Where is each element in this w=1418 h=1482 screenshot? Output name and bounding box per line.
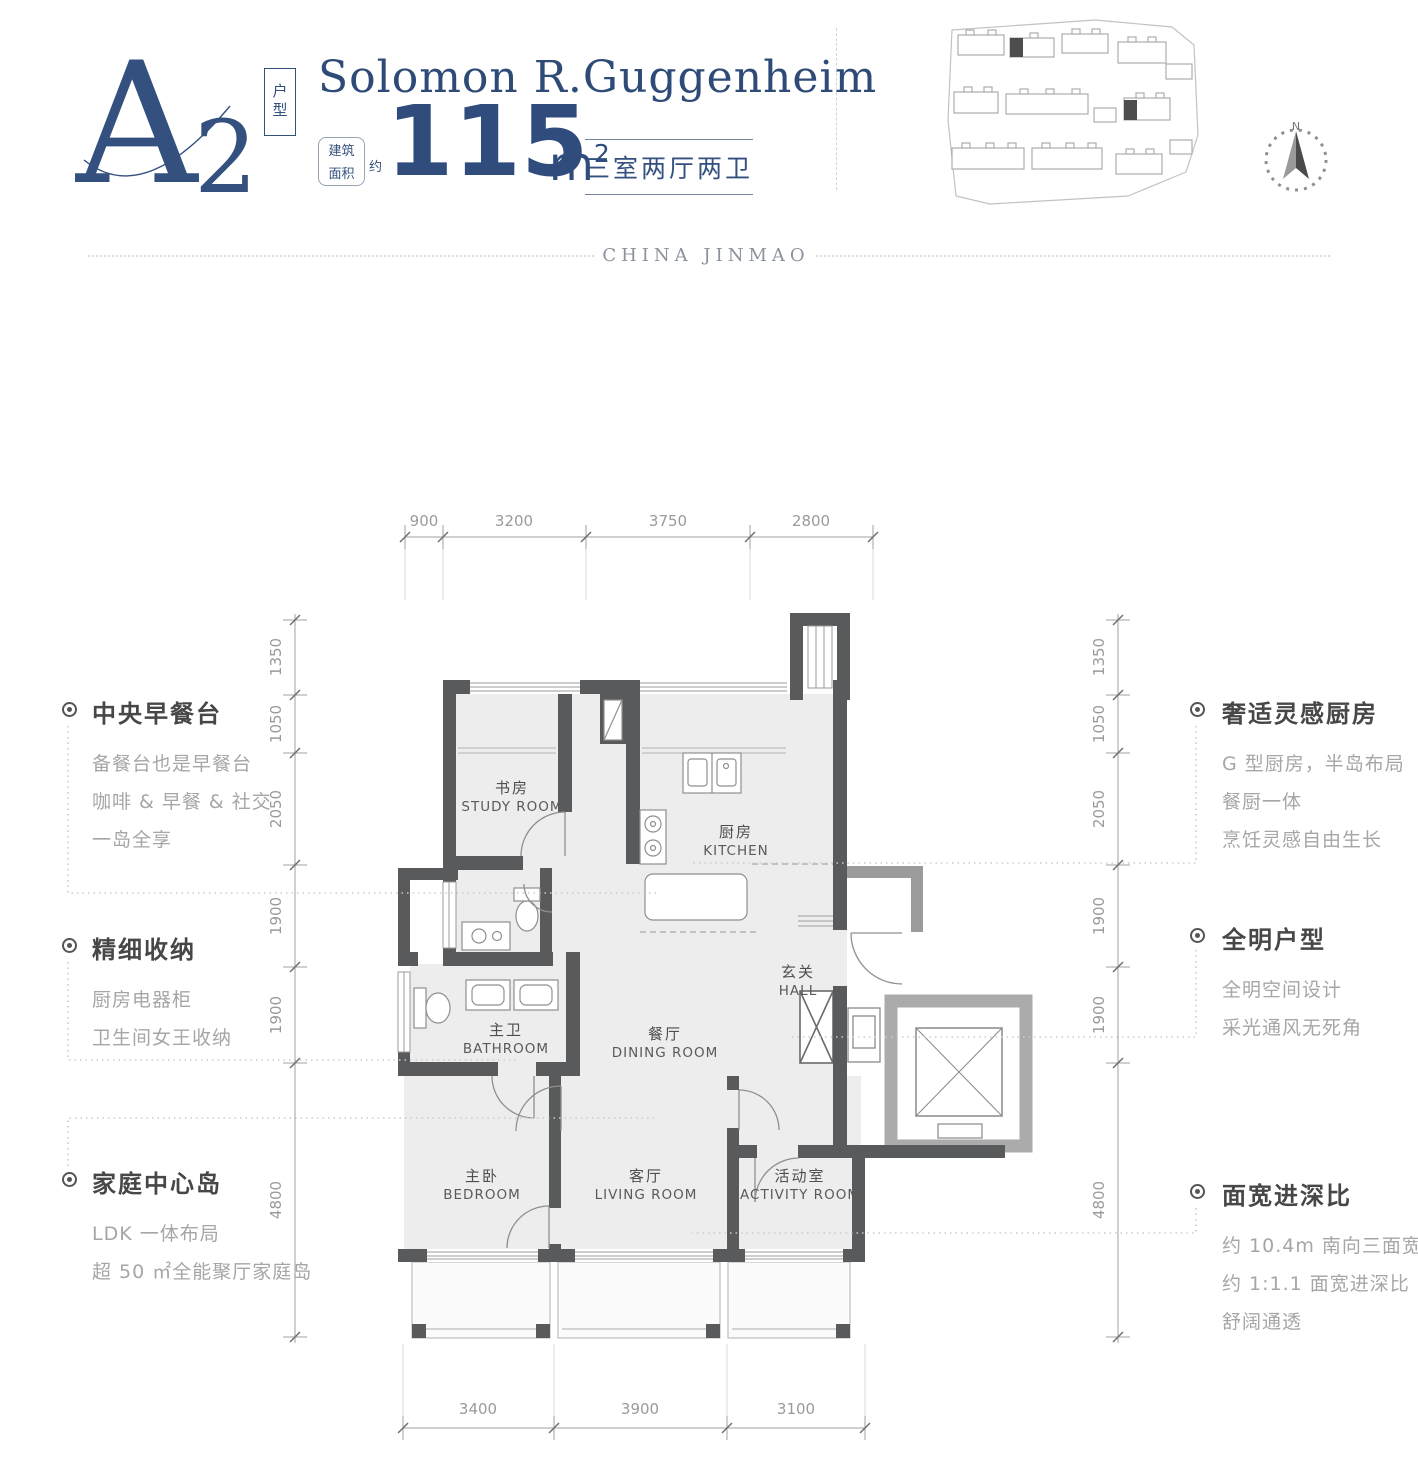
entry-door-arc xyxy=(851,933,902,984)
area-label-line1: 建筑 xyxy=(319,140,364,163)
annotation-kitchen: 奢适灵感厨房 G 型厨房，半岛布局 餐厨一体 烹饪灵感自由生长 xyxy=(1222,694,1405,859)
annotation-storage: 精细收纳 厨房电器柜 卫生间女王收纳 xyxy=(92,930,232,1057)
brand-text: CHINA JINMAO xyxy=(600,245,812,266)
annotation-breakfast-bar: 中央早餐台 备餐台也是早餐台 咖啡 & 早餐 & 社交 一岛全享 xyxy=(92,694,272,859)
svg-text:1050: 1050 xyxy=(1090,705,1108,743)
svg-text:HALL: HALL xyxy=(779,983,817,999)
bullet-kitchen xyxy=(1190,702,1205,717)
annotation-title: 奢适灵感厨房 xyxy=(1222,694,1405,729)
unit-code-number: 2 xyxy=(194,108,258,208)
svg-text:KITCHEN: KITCHEN xyxy=(703,843,769,859)
svg-text:ACTIVITY ROOM: ACTIVITY ROOM xyxy=(740,1187,860,1203)
svg-text:2050: 2050 xyxy=(1090,790,1108,828)
compass-needle-dark xyxy=(1296,131,1309,179)
svg-text:BATHROOM: BATHROOM xyxy=(463,1041,549,1057)
annotation-line: 烹饪灵感自由生长 xyxy=(1222,821,1405,859)
svg-text:厨房: 厨房 xyxy=(719,823,753,841)
brand-rule-right xyxy=(816,255,1330,257)
area-label-line2: 面积 xyxy=(319,163,364,186)
annotation-width-depth: 面宽进深比 约 10.4m 南向三面宽 约 1:1.1 面宽进深比 舒阔通透 xyxy=(1222,1176,1418,1341)
compass-needle-light xyxy=(1283,131,1296,179)
svg-text:4800: 4800 xyxy=(1090,1181,1108,1219)
annotation-title: 精细收纳 xyxy=(92,930,232,965)
svg-text:2800: 2800 xyxy=(792,512,830,530)
annotation-line: LDK 一体布局 xyxy=(92,1215,312,1253)
svg-text:1900: 1900 xyxy=(1090,897,1108,935)
svg-text:3900: 3900 xyxy=(621,1400,659,1418)
svg-text:玄关: 玄关 xyxy=(781,963,815,981)
header-divider xyxy=(836,28,837,190)
area-label-box: 建筑 面积 xyxy=(318,137,365,186)
hall-cabinet xyxy=(848,1008,880,1062)
annotation-bright-layout: 全明户型 全明空间设计 采光通风无死角 xyxy=(1222,920,1362,1047)
bath-toilet-tank xyxy=(414,988,426,1028)
svg-text:1350: 1350 xyxy=(1090,638,1108,676)
compass-north-label: N xyxy=(1292,120,1300,133)
svg-text:3100: 3100 xyxy=(777,1400,815,1418)
svg-text:3400: 3400 xyxy=(459,1400,497,1418)
unit-code-letter: A xyxy=(76,40,197,208)
compass: N xyxy=(1266,120,1326,190)
svg-text:DINING ROOM: DINING ROOM xyxy=(612,1045,719,1061)
bullet-family-island xyxy=(62,1172,77,1187)
svg-text:餐厅: 餐厅 xyxy=(648,1025,682,1043)
bullet-storage xyxy=(62,938,77,953)
svg-text:书房: 书房 xyxy=(495,779,529,797)
annotation-line: 餐厨一体 xyxy=(1222,783,1405,821)
powder-toilet-tank xyxy=(514,888,540,901)
protrusion-window xyxy=(808,626,832,688)
layout-summary: 三室两厅两卫 xyxy=(585,139,753,195)
svg-text:客厅: 客厅 xyxy=(629,1167,663,1185)
svg-text:主卫: 主卫 xyxy=(489,1021,523,1039)
kitchen-island xyxy=(645,874,747,920)
annotation-line: 采光通风无死角 xyxy=(1222,1009,1362,1047)
svg-text:主卧: 主卧 xyxy=(465,1167,499,1185)
bullet-breakfast-bar xyxy=(62,702,77,717)
bullet-width-depth xyxy=(1190,1184,1205,1199)
annotation-line: 咖啡 & 早餐 & 社交 xyxy=(92,783,272,821)
annotation-line: 全明空间设计 xyxy=(1222,971,1362,1009)
area-approx-label: 约 xyxy=(369,156,382,175)
bullet-bright-layout xyxy=(1190,928,1205,943)
annotation-line: 卫生间女王收纳 xyxy=(92,1019,232,1057)
svg-text:1900: 1900 xyxy=(1090,996,1108,1034)
svg-text:LIVING ROOM: LIVING ROOM xyxy=(595,1187,698,1203)
svg-text:900: 900 xyxy=(410,512,439,530)
annotation-line: 超 50 ㎡全能聚厅家庭岛 xyxy=(92,1253,312,1291)
annotation-family-island: 家庭中心岛 LDK 一体布局 超 50 ㎡全能聚厅家庭岛 xyxy=(92,1164,312,1291)
svg-text:1900: 1900 xyxy=(267,996,285,1034)
exterior-walls xyxy=(847,866,923,932)
svg-text:3200: 3200 xyxy=(495,512,533,530)
elevator xyxy=(891,1001,1026,1146)
annotation-title: 中央早餐台 xyxy=(92,694,272,729)
unit-type-tag: 户型 xyxy=(264,68,296,136)
annotation-line: 约 10.4m 南向三面宽 xyxy=(1222,1227,1418,1265)
annotation-line: 约 1:1.1 面宽进深比 xyxy=(1222,1265,1418,1303)
annotation-title: 面宽进深比 xyxy=(1222,1176,1418,1211)
svg-text:1900: 1900 xyxy=(267,897,285,935)
bath-toilet xyxy=(426,993,450,1023)
balconies xyxy=(412,1262,850,1338)
annotation-line: 厨房电器柜 xyxy=(92,981,232,1019)
annotation-line: 一岛全享 xyxy=(92,821,272,859)
annotation-line: 备餐台也是早餐台 xyxy=(92,745,272,783)
annotation-line: 舒阔通透 xyxy=(1222,1303,1418,1341)
site-plan xyxy=(948,20,1198,204)
annotation-line: G 型厨房，半岛布局 xyxy=(1222,745,1405,783)
annotation-title: 全明户型 xyxy=(1222,920,1362,955)
svg-text:STUDY ROOM: STUDY ROOM xyxy=(461,799,562,815)
duct-shaft xyxy=(800,991,833,1063)
svg-text:活动室: 活动室 xyxy=(774,1167,825,1185)
svg-text:1350: 1350 xyxy=(267,638,285,676)
svg-text:3750: 3750 xyxy=(649,512,687,530)
svg-text:BEDROOM: BEDROOM xyxy=(443,1187,520,1203)
annotation-title: 家庭中心岛 xyxy=(92,1164,312,1199)
brand-rule-left xyxy=(88,255,594,257)
